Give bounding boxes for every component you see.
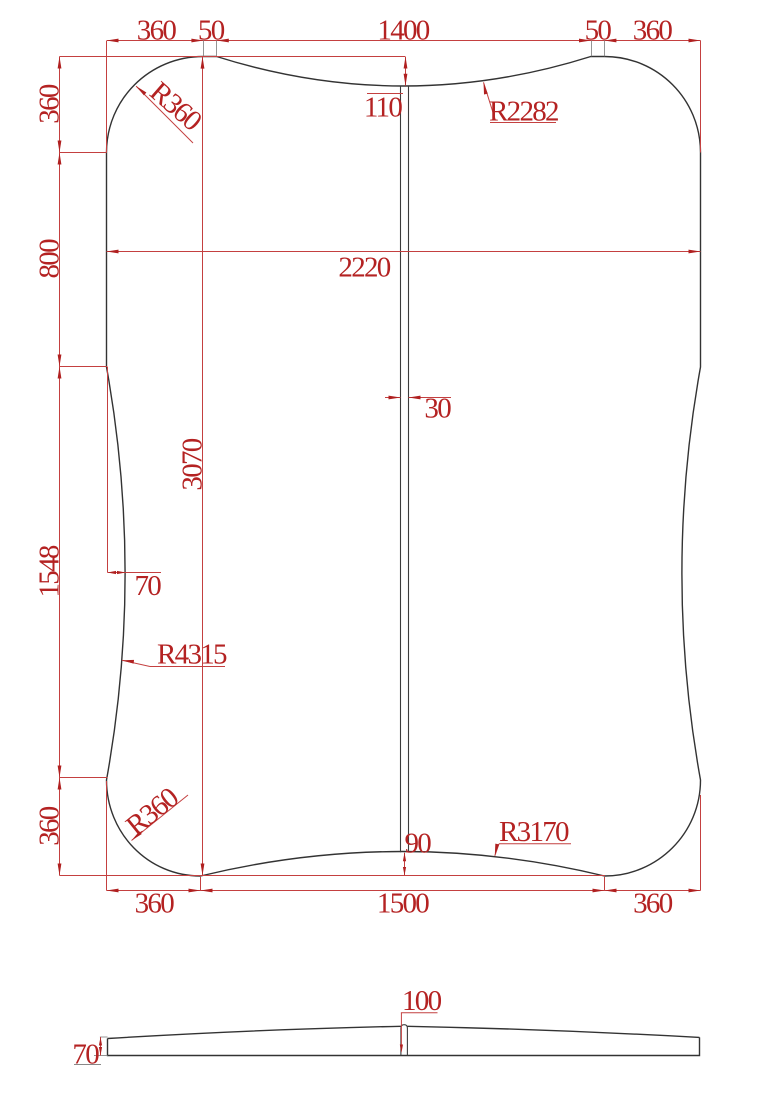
- svg-text:360: 360: [135, 888, 175, 920]
- svg-text:50: 50: [585, 15, 612, 47]
- svg-text:70: 70: [134, 570, 161, 602]
- svg-text:R360: R360: [120, 781, 185, 842]
- svg-text:1548: 1548: [34, 545, 66, 597]
- svg-text:800: 800: [34, 239, 66, 279]
- svg-text:R3170: R3170: [499, 816, 569, 848]
- svg-text:70: 70: [72, 1038, 99, 1070]
- svg-text:360: 360: [633, 888, 673, 920]
- svg-text:100: 100: [402, 985, 442, 1017]
- svg-text:2220: 2220: [338, 252, 390, 284]
- svg-text:360: 360: [34, 84, 66, 124]
- svg-text:1400: 1400: [377, 14, 429, 46]
- svg-text:R2282: R2282: [489, 96, 558, 128]
- svg-text:R4315: R4315: [157, 639, 227, 671]
- svg-text:1500: 1500: [377, 888, 429, 920]
- svg-text:360: 360: [137, 15, 177, 47]
- svg-text:30: 30: [424, 392, 451, 424]
- svg-text:360: 360: [633, 15, 673, 47]
- svg-text:360: 360: [34, 806, 66, 846]
- svg-text:50: 50: [198, 15, 225, 47]
- svg-text:90: 90: [404, 828, 431, 860]
- svg-text:3070: 3070: [176, 438, 208, 490]
- svg-text:R360: R360: [144, 76, 208, 138]
- svg-text:110: 110: [364, 92, 403, 124]
